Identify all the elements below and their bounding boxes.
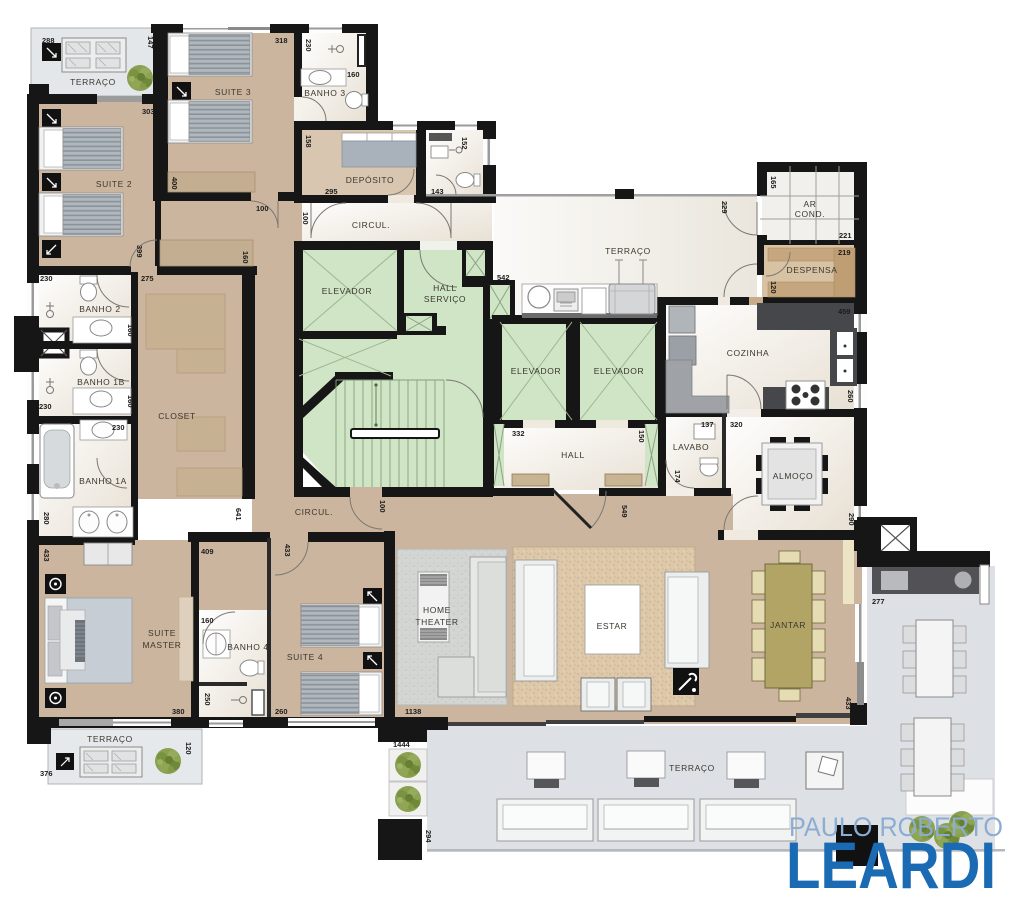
- svg-text:303: 303: [142, 107, 155, 116]
- svg-text:CIRCUL.: CIRCUL.: [352, 220, 390, 230]
- svg-text:433: 433: [42, 549, 51, 562]
- svg-text:HALL: HALL: [433, 283, 457, 293]
- svg-text:230: 230: [40, 274, 53, 283]
- svg-text:ESTAR: ESTAR: [597, 621, 628, 631]
- svg-text:HALL: HALL: [561, 450, 585, 460]
- svg-text:143: 143: [431, 187, 444, 196]
- svg-text:320: 320: [730, 420, 743, 429]
- svg-text:152: 152: [460, 137, 469, 150]
- svg-text:332: 332: [512, 429, 525, 438]
- svg-text:SERVIÇO: SERVIÇO: [424, 294, 466, 304]
- svg-text:549: 549: [620, 505, 629, 518]
- svg-text:SUITE 2: SUITE 2: [96, 179, 132, 189]
- svg-text:260: 260: [275, 707, 288, 716]
- svg-text:295: 295: [325, 187, 338, 196]
- svg-text:280: 280: [42, 512, 51, 525]
- svg-text:SUITE 4: SUITE 4: [287, 652, 323, 662]
- svg-text:COND.: COND.: [795, 209, 825, 219]
- svg-text:CIRCUL.: CIRCUL.: [295, 507, 333, 517]
- svg-text:TERRAÇO: TERRAÇO: [669, 763, 715, 773]
- svg-text:288: 288: [42, 36, 55, 45]
- svg-text:174: 174: [673, 470, 682, 483]
- svg-text:376: 376: [40, 769, 53, 778]
- svg-text:ELEVADOR: ELEVADOR: [594, 366, 644, 376]
- svg-text:277: 277: [872, 597, 885, 606]
- svg-text:294: 294: [424, 830, 433, 843]
- svg-text:1138: 1138: [405, 707, 421, 716]
- svg-text:DESPENSA: DESPENSA: [786, 265, 837, 275]
- svg-text:ELEVADOR: ELEVADOR: [322, 286, 372, 296]
- svg-text:CLOSET: CLOSET: [158, 411, 196, 421]
- svg-text:409: 409: [201, 547, 214, 556]
- svg-text:ALMOÇO: ALMOÇO: [773, 471, 813, 481]
- svg-text:150: 150: [637, 430, 646, 443]
- svg-text:230: 230: [39, 402, 52, 411]
- svg-text:BANHO 1A: BANHO 1A: [79, 476, 127, 486]
- svg-text:641: 641: [234, 508, 243, 521]
- svg-text:MASTER: MASTER: [142, 640, 181, 650]
- svg-text:100: 100: [301, 212, 310, 225]
- svg-text:318: 318: [275, 36, 288, 45]
- svg-text:250: 250: [203, 693, 212, 706]
- svg-text:SUITE 3: SUITE 3: [215, 87, 251, 97]
- svg-text:229: 229: [720, 201, 729, 214]
- svg-text:BANHO 3: BANHO 3: [304, 88, 346, 98]
- svg-text:TERRAÇO: TERRAÇO: [70, 77, 116, 87]
- svg-text:137: 137: [701, 420, 714, 429]
- svg-text:JANTAR: JANTAR: [770, 620, 806, 630]
- svg-text:433: 433: [283, 544, 292, 557]
- svg-text:542: 542: [497, 273, 510, 282]
- svg-text:1444: 1444: [393, 740, 411, 749]
- svg-text:DEPÓSITO: DEPÓSITO: [346, 175, 395, 185]
- svg-text:399: 399: [135, 245, 144, 258]
- svg-text:SUITE: SUITE: [148, 628, 176, 638]
- svg-text:HOME: HOME: [423, 605, 451, 615]
- svg-text:160: 160: [241, 251, 250, 264]
- svg-text:LAVABO: LAVABO: [673, 442, 709, 452]
- svg-text:275: 275: [141, 274, 154, 283]
- svg-text:459: 459: [838, 307, 851, 316]
- svg-text:BANHO 2: BANHO 2: [79, 304, 121, 314]
- svg-text:221: 221: [839, 231, 852, 240]
- svg-text:165: 165: [769, 176, 778, 189]
- svg-text:400: 400: [170, 177, 179, 190]
- svg-text:BANHO 1B: BANHO 1B: [77, 377, 125, 387]
- svg-text:THEATER: THEATER: [415, 617, 458, 627]
- svg-text:433: 433: [844, 697, 853, 710]
- svg-text:380: 380: [172, 707, 185, 716]
- svg-text:120: 120: [769, 281, 778, 294]
- svg-text:160: 160: [201, 616, 214, 625]
- svg-text:100: 100: [378, 500, 387, 513]
- svg-text:ELEVADOR: ELEVADOR: [511, 366, 561, 376]
- svg-text:AR: AR: [803, 199, 816, 209]
- svg-text:230: 230: [112, 423, 125, 432]
- svg-text:BANHO 4: BANHO 4: [227, 642, 269, 652]
- svg-text:147: 147: [146, 36, 155, 49]
- svg-text:120: 120: [184, 742, 193, 755]
- svg-text:290: 290: [847, 513, 856, 526]
- svg-text:219: 219: [838, 248, 851, 257]
- svg-text:160: 160: [347, 70, 360, 79]
- svg-text:TERRAÇO: TERRAÇO: [605, 246, 651, 256]
- svg-text:LEARDI: LEARDI: [786, 828, 996, 902]
- svg-text:158: 158: [304, 135, 313, 148]
- svg-text:100: 100: [256, 204, 269, 213]
- svg-text:160: 160: [126, 324, 135, 337]
- svg-text:260: 260: [846, 390, 855, 403]
- svg-text:TERRAÇO: TERRAÇO: [87, 734, 133, 744]
- svg-text:COZINHA: COZINHA: [727, 348, 769, 358]
- svg-text:230: 230: [304, 39, 313, 52]
- svg-text:160: 160: [126, 395, 135, 408]
